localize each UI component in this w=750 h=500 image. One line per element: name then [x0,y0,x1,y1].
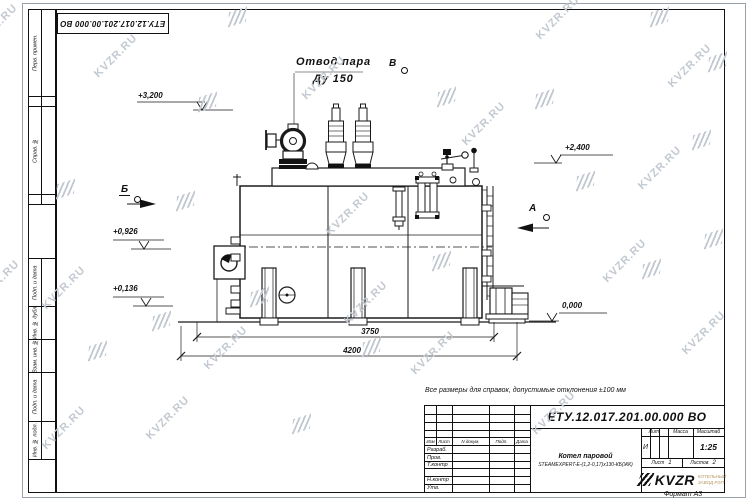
margin-cell: Инв. № дубл. [29,305,55,340]
format-label: Формат А3 [648,491,718,498]
elevation-value: 0,000 [562,301,582,310]
margin-cell-label: Инв. № дубл. [29,305,42,339]
tb-line [489,406,490,492]
tb-company-cell: KVZR КОТЕЛЬНЫЙ ЗАВОД РЭП [641,467,724,492]
view-label-a: А [529,203,536,214]
tolerance-note: Все размеры для справок, допустимые откл… [425,387,626,394]
view-ref-circle-icon [401,67,408,74]
tb-lit-header: Лит. [641,428,668,436]
tb-product-name: Котел паровой STEAMEXPERT-Е-(1,2-0,17)х1… [530,428,641,492]
tb-row-label: Пров. [427,454,461,461]
dimension-value: 4200 [322,346,382,355]
dimension-value: 3750 [340,327,400,336]
margin-cell-label: Взам. инв. № [29,339,42,372]
corner-doc-number-stamp: ЕТУ.12.017.201.00.000 ВО [57,13,169,34]
view-ref-circle-icon [134,196,141,203]
tb-header-izm: Изм [425,437,436,445]
elevation-value: +0,136 [113,284,138,293]
tb-product-name-line1: Котел паровой [558,453,612,460]
margin-cell [29,194,55,205]
view-label-v: В [389,58,396,69]
tb-sheet-label: Лист [651,460,664,466]
tb-row-label: Разраб. [427,446,461,453]
view-label-b: Б [119,184,130,196]
tb-header-ndoc: N докум. [452,437,489,445]
kvzr-logo-text: KVZR [655,472,695,488]
tb-lit-value: И [641,436,650,458]
kvzr-tagline-line2: ЗАВОД РЭП [698,480,726,485]
tb-scale-header: Масштаб [693,428,724,436]
elevation-value: +3,200 [138,91,163,100]
margin-cell: Взам. инв. № [29,339,55,373]
margin-cell-label: Подп. и дата [29,372,42,421]
tb-line [425,414,530,415]
tb-sheets-label: Листов [690,460,708,466]
tb-doc-number: ЕТУ.12.017.201.00.000 ВО [530,406,724,428]
tb-line [514,406,515,492]
margin-column: Перв. примен. Справ. № Подп. и дата Инв.… [28,9,57,493]
margin-cell: Подп. и дата [29,258,55,307]
steam-outlet-label: Отвод пара [296,56,371,68]
title-block: ЕТУ.12.017.201.00.000 ВО Изм Лист N доку… [424,405,725,493]
view-ref-circle-icon [543,214,550,221]
elevation-value: +0,926 [113,227,138,236]
margin-cell: Справ. № [29,106,55,195]
margin-cell: Перв. примен. [29,10,55,97]
margin-cell: Подп. и дата [29,372,55,422]
tb-header-podp: Подп. [489,437,514,445]
margin-cell: Инв. № подл. [29,421,55,460]
corner-doc-number: ЕТУ.12.017.201.00.000 ВО [60,19,165,28]
elevation-value: +2,400 [565,143,590,152]
tb-mass-header: Масса [668,428,693,436]
margin-cell-label: Перв. примен. [29,10,42,96]
steam-outlet-size-label: Ду 150 [313,73,354,85]
tb-header-data: Дата [514,437,530,445]
margin-cell-label: Инв. № подл. [29,421,42,459]
margin-cell-label: Справ. № [29,106,42,194]
tb-row-label: Утв. [427,485,461,492]
tb-sheets-value: 2 [712,460,715,466]
tb-header-list: Лист [436,437,452,445]
drawing-sheet: KVZR.RU KVZR.RU KVZR.RU KVZR.RU KVZR.RU … [0,0,750,500]
tb-line [425,430,530,431]
tb-line [425,422,530,423]
tb-product-name-line2: STEAMEXPERT-Е-(1,2-0,17)х130-КБ(ЖК) [538,462,633,468]
tb-sheet-value: 1 [668,460,671,466]
margin-cell-label: Подп. и дата [29,259,42,306]
tb-row-label: Н.контр [427,477,461,484]
tb-row-label: Т.контр [427,462,461,469]
tb-scale-value: 1:25 [693,436,724,458]
